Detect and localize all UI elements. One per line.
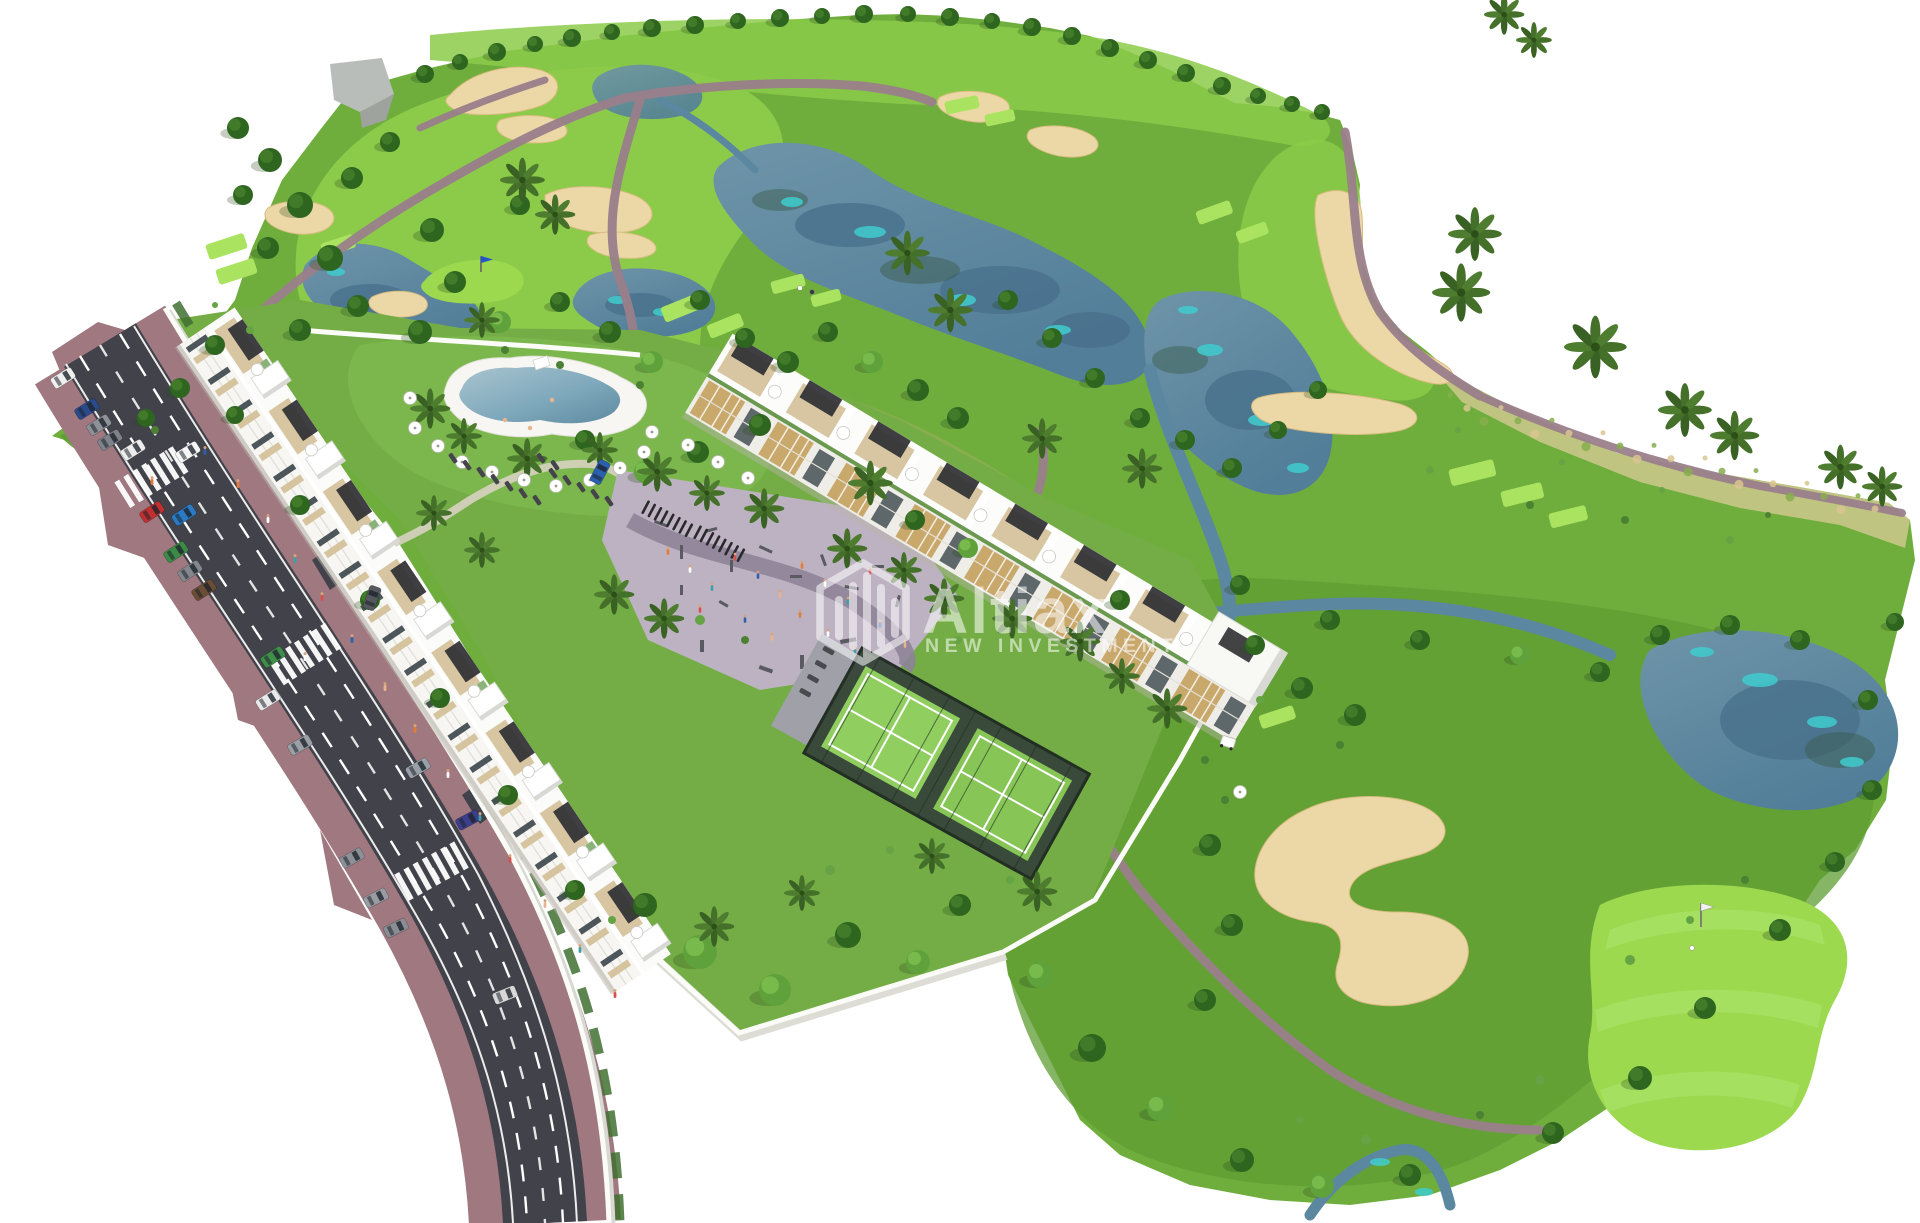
rendering-canvas: Altiax NEW INVESTMENT xyxy=(0,0,1920,1223)
aerial-rendering: Altiax NEW INVESTMENT xyxy=(0,0,1920,1223)
watermark-tagline: NEW INVESTMENT xyxy=(925,635,1179,657)
